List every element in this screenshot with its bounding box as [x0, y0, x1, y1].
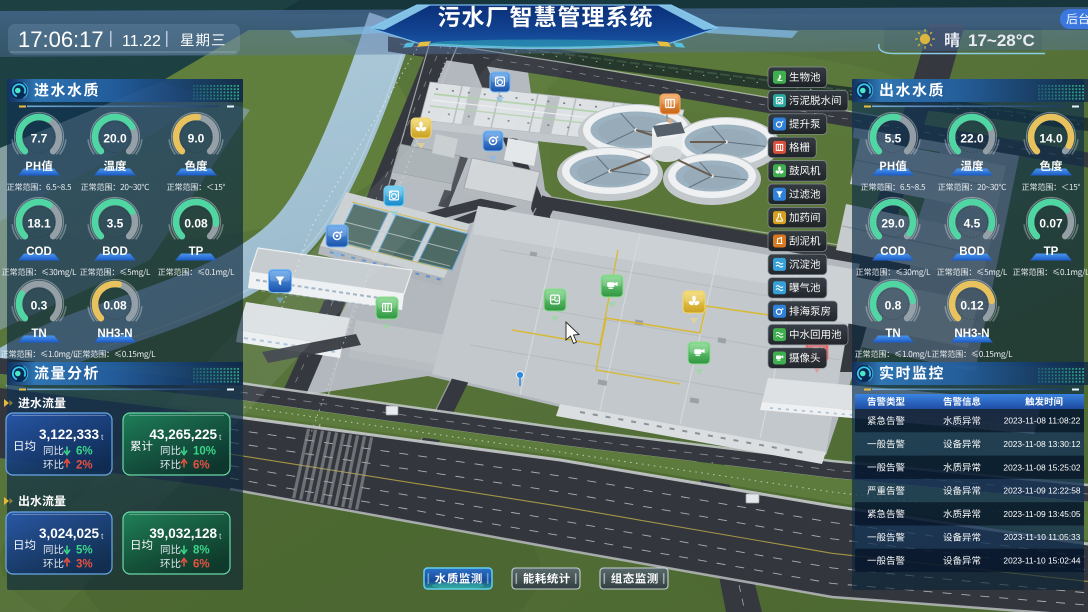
svg-text:0.08: 0.08 [103, 298, 127, 312]
svg-text:3,024,025: 3,024,025 [39, 526, 100, 541]
svg-text:2%: 2% [76, 460, 93, 472]
svg-text:11.22: 11.22 [122, 33, 161, 50]
svg-text:17:06:17: 17:06:17 [18, 27, 104, 52]
svg-text:39,032,128: 39,032,128 [149, 526, 217, 541]
svg-text:BOD: BOD [959, 246, 985, 258]
svg-text:22.0: 22.0 [960, 131, 984, 145]
svg-text:3.5: 3.5 [107, 216, 124, 230]
svg-text:TN: TN [885, 328, 900, 340]
svg-text:2023-11-09 13:45:05: 2023-11-09 13:45:05 [1003, 509, 1080, 519]
svg-text:2023-11-10 11:05:33: 2023-11-10 11:05:33 [1004, 532, 1081, 542]
svg-text:2023-11-08 11:08:22: 2023-11-08 11:08:22 [1004, 416, 1081, 426]
svg-text:0.12: 0.12 [960, 298, 984, 312]
svg-text:14.0: 14.0 [1039, 131, 1063, 145]
svg-text:3%: 3% [76, 559, 93, 571]
svg-text:8%: 8% [193, 545, 210, 557]
svg-text:6%: 6% [76, 446, 93, 458]
svg-text:10%: 10% [193, 446, 216, 458]
svg-text:5%: 5% [76, 545, 93, 557]
svg-text:COD: COD [880, 246, 906, 258]
svg-text:TP: TP [1044, 246, 1059, 258]
svg-text:0.3: 0.3 [31, 298, 48, 312]
svg-text:COD: COD [26, 246, 52, 258]
svg-text:2023-11-08 15:25:02: 2023-11-08 15:25:02 [1003, 462, 1080, 472]
svg-text:6%: 6% [193, 559, 210, 571]
svg-text:TN: TN [31, 328, 46, 340]
svg-text:20.0: 20.0 [103, 131, 127, 145]
svg-text:0.8: 0.8 [885, 298, 902, 312]
svg-text:3,122,333: 3,122,333 [39, 427, 100, 442]
svg-text:BOD: BOD [102, 246, 128, 258]
svg-text:4.5: 4.5 [964, 216, 981, 230]
svg-text:5.5: 5.5 [885, 131, 902, 145]
svg-text:9.0: 9.0 [188, 131, 205, 145]
svg-text:NH3-N: NH3-N [97, 328, 132, 340]
svg-text:NH3-N: NH3-N [954, 328, 989, 340]
svg-text:18.1: 18.1 [27, 216, 51, 230]
svg-text:0.08: 0.08 [184, 216, 208, 230]
svg-text:6%: 6% [193, 460, 210, 472]
svg-text:2023-11-09 12:22:58: 2023-11-09 12:22:58 [1003, 486, 1080, 496]
svg-text:7.7: 7.7 [31, 131, 48, 145]
svg-text:29.0: 29.0 [881, 216, 905, 230]
svg-text:0.07: 0.07 [1039, 216, 1063, 230]
svg-text:TP: TP [189, 246, 204, 258]
svg-text:43,265,225: 43,265,225 [149, 427, 217, 442]
svg-text:2023-11-08 13:30:12: 2023-11-08 13:30:12 [1003, 439, 1080, 449]
svg-text:2023-11-10 15:02:44: 2023-11-10 15:02:44 [1003, 556, 1080, 566]
